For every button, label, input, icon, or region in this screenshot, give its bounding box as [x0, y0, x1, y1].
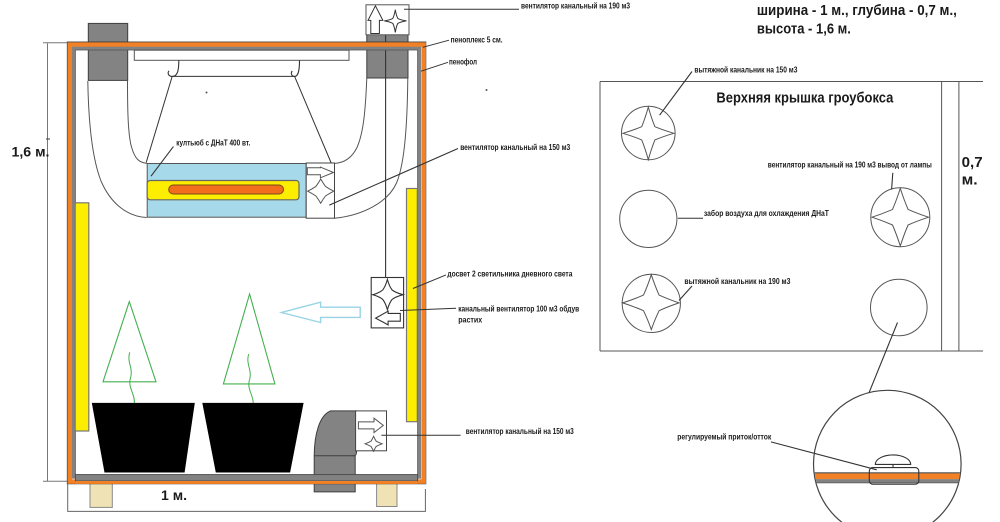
svg-text:вентилятор канальный на 150 м3: вентилятор канальный на 150 м3: [460, 143, 570, 152]
svg-text:вентилятор канальный на 190 м3: вентилятор канальный на 190 м3 вывод от …: [768, 160, 932, 169]
svg-text:вытяжной канальник на 190 м3: вытяжной канальник на 190 м3: [684, 277, 790, 286]
svg-text:растих: растих: [458, 316, 482, 325]
svg-text:регулируемый приток/отток: регулируемый приток/отток: [677, 433, 772, 442]
svg-text:1 м.: 1 м.: [161, 487, 187, 503]
svg-text:забор воздуха для охлаждения Д: забор воздуха для охлаждения ДНаТ: [704, 208, 829, 218]
svg-text:канальный вентилятор 100 м3 об: канальный вентилятор 100 м3 обдув: [458, 303, 579, 313]
svg-text:вентилятор канальный на 190 м3: вентилятор канальный на 190 м3: [521, 2, 630, 11]
svg-text:0,7: 0,7: [962, 154, 983, 171]
svg-text:култьюб с ДНаТ 400 вт.: култьюб с ДНаТ 400 вт.: [176, 137, 250, 147]
svg-text:м.: м.: [962, 172, 978, 189]
svg-text:досвет 2 светильника дневного: досвет 2 светильника дневного света: [447, 269, 572, 278]
svg-text:высота - 1,6 м.: высота - 1,6 м.: [757, 20, 851, 37]
svg-text:ширина - 1 м., глубина - 0,7 м: ширина - 1 м., глубина - 0,7 м.,: [757, 2, 957, 19]
svg-text:Верхняя крышка гроубокса: Верхняя крышка гроубокса: [716, 90, 894, 107]
svg-text:пеноплекс 5 см.: пеноплекс 5 см.: [451, 35, 503, 44]
svg-text:пенофол: пенофол: [449, 57, 477, 66]
svg-text:вентилятор канальный на 150 м3: вентилятор канальный на 150 м3: [466, 427, 574, 436]
svg-text:вытяжной канальник на 150 м3: вытяжной канальник на 150 м3: [694, 65, 797, 74]
svg-text:1,6 м.: 1,6 м.: [12, 144, 50, 160]
